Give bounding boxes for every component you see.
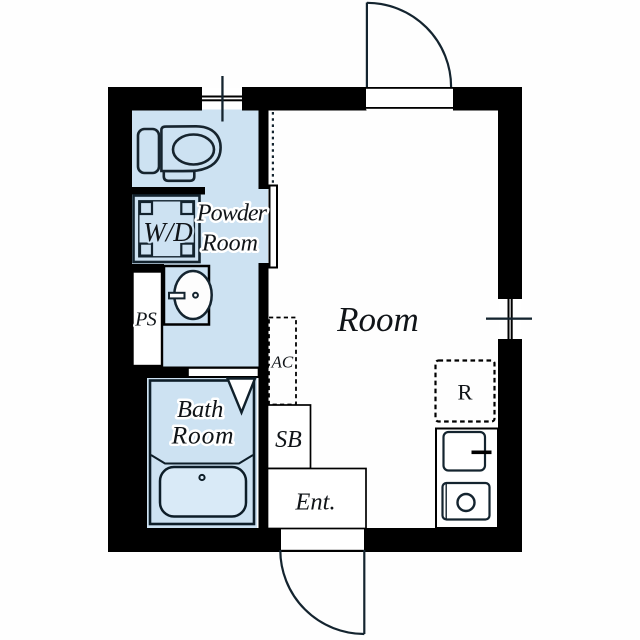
svg-text:Room: Room xyxy=(171,420,235,449)
svg-text:Ent.: Ent. xyxy=(294,489,335,516)
svg-text:SB: SB xyxy=(275,427,302,453)
svg-text:PS: PS xyxy=(134,308,157,330)
svg-text:Powder: Powder xyxy=(196,200,268,226)
svg-text:Room: Room xyxy=(201,231,258,257)
svg-text:R: R xyxy=(457,379,472,404)
svg-text:Bath: Bath xyxy=(177,396,223,423)
svg-text:W/D: W/D xyxy=(143,217,193,247)
svg-text:Room: Room xyxy=(336,300,419,339)
svg-text:AC: AC xyxy=(271,353,294,372)
